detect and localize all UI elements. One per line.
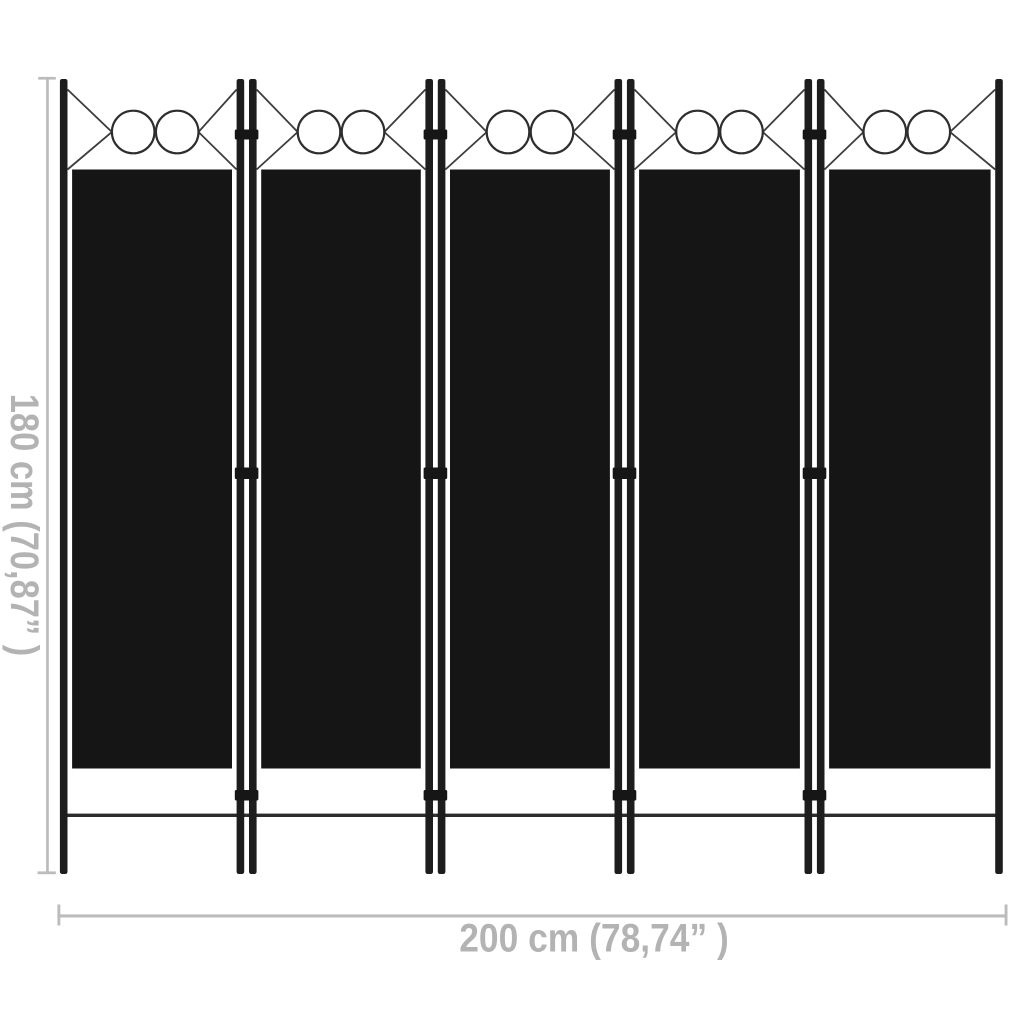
svg-text:180 cm (70,87” ): 180 cm (70,87” ) — [2, 394, 47, 656]
svg-text:200 cm (78,74” ): 200 cm (78,74” ) — [459, 917, 729, 961]
